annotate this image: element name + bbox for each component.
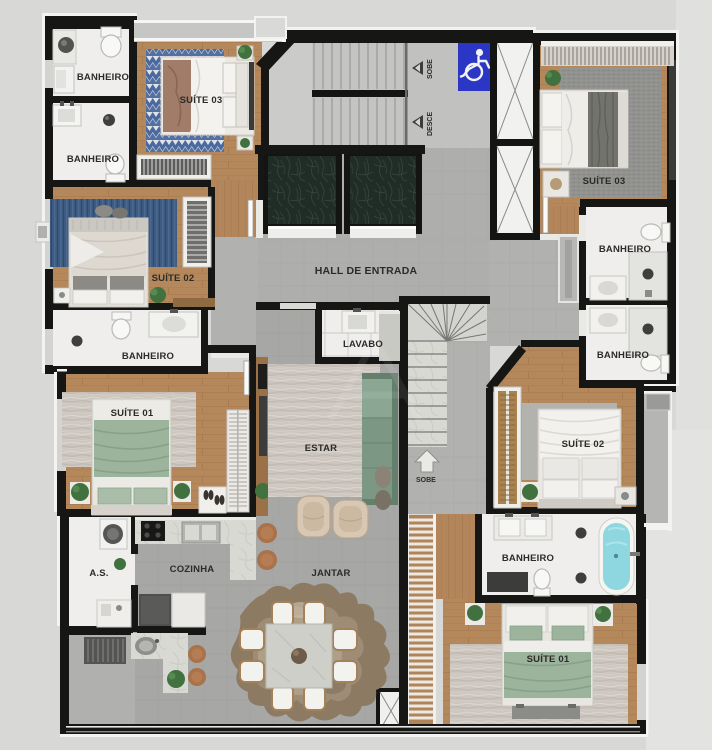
- svg-text:HALL DE ENTRADA: HALL DE ENTRADA: [315, 265, 418, 277]
- svg-text:A.S.: A.S.: [89, 568, 108, 579]
- svg-text:SUÍTE 01: SUÍTE 01: [527, 654, 570, 665]
- svg-text:COZINHA: COZINHA: [170, 564, 215, 575]
- svg-text:BANHEIRO: BANHEIRO: [122, 351, 174, 362]
- svg-text:SOBE: SOBE: [416, 477, 436, 484]
- svg-text:SUÍTE 01: SUÍTE 01: [111, 408, 154, 419]
- svg-text:SOBE: SOBE: [427, 59, 434, 79]
- svg-text:SUÍTE 02: SUÍTE 02: [562, 439, 605, 450]
- svg-text:JANTAR: JANTAR: [311, 568, 350, 579]
- svg-text:BANHEIRO: BANHEIRO: [67, 154, 119, 165]
- svg-text:BANHEIRO: BANHEIRO: [502, 553, 554, 564]
- svg-text:SUÍTE 02: SUÍTE 02: [152, 273, 195, 284]
- svg-text:SUÍTE 03: SUÍTE 03: [583, 176, 626, 187]
- svg-text:ESTAR: ESTAR: [305, 443, 338, 454]
- svg-text:BANHEIRO: BANHEIRO: [597, 350, 649, 361]
- svg-text:BANHEIRO: BANHEIRO: [77, 72, 129, 83]
- svg-text:SUÍTE 03: SUÍTE 03: [180, 95, 223, 106]
- svg-text:LAVABO: LAVABO: [343, 339, 383, 350]
- svg-text:BANHEIRO: BANHEIRO: [599, 244, 651, 255]
- svg-text:DESCE: DESCE: [427, 112, 434, 136]
